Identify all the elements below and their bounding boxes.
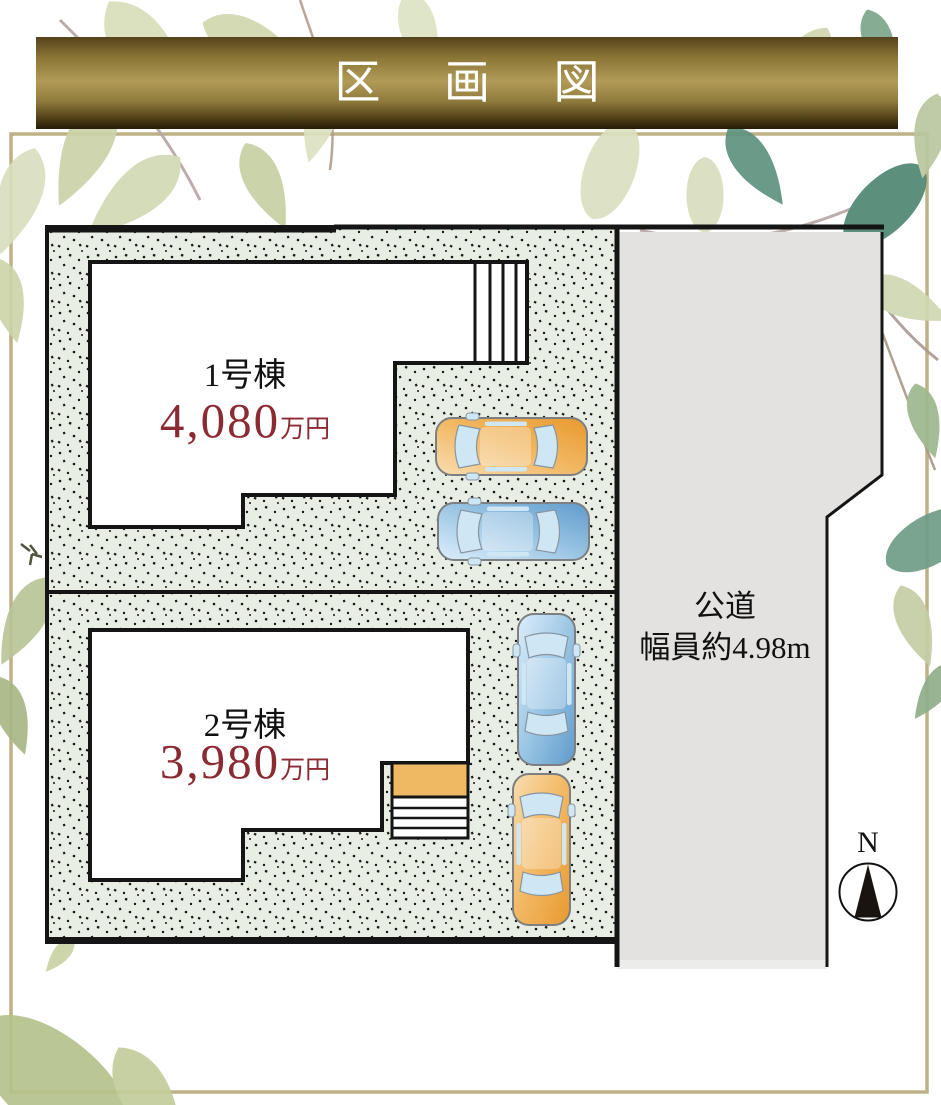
car-orange-icon (508, 774, 575, 925)
lot-2-price: 3,980万円 (75, 733, 415, 790)
road-edge-shading (617, 960, 827, 969)
flyer-page: 区 画 図 1号棟 4,080万円 2号棟 3,980万円 公道 幅員約4.98… (0, 0, 941, 1105)
lot-2-price-value: 3,980 (160, 734, 280, 789)
north-label: N (838, 824, 898, 862)
lot-2-price-unit: 万円 (280, 757, 330, 784)
north-compass-icon (840, 864, 897, 921)
road-label: 公道 幅員約4.98m (605, 586, 845, 668)
car-blue-icon (438, 498, 589, 565)
road-label-line1: 公道 (605, 586, 845, 627)
lot-1-price: 4,080万円 (75, 392, 415, 449)
site-plan-graphic (0, 0, 941, 1105)
lot-1-price-value: 4,080 (160, 393, 280, 448)
page-title: 区 画 図 (36, 37, 898, 129)
lot-1-name: 1号棟 (95, 348, 395, 396)
title-banner: 区 画 図 (36, 37, 898, 129)
car-orange-icon (436, 413, 587, 480)
twig (21, 544, 42, 565)
car-blue-icon (513, 614, 580, 765)
road-label-line2: 幅員約4.98m (605, 627, 845, 668)
lot-1-price-unit: 万円 (280, 416, 330, 443)
